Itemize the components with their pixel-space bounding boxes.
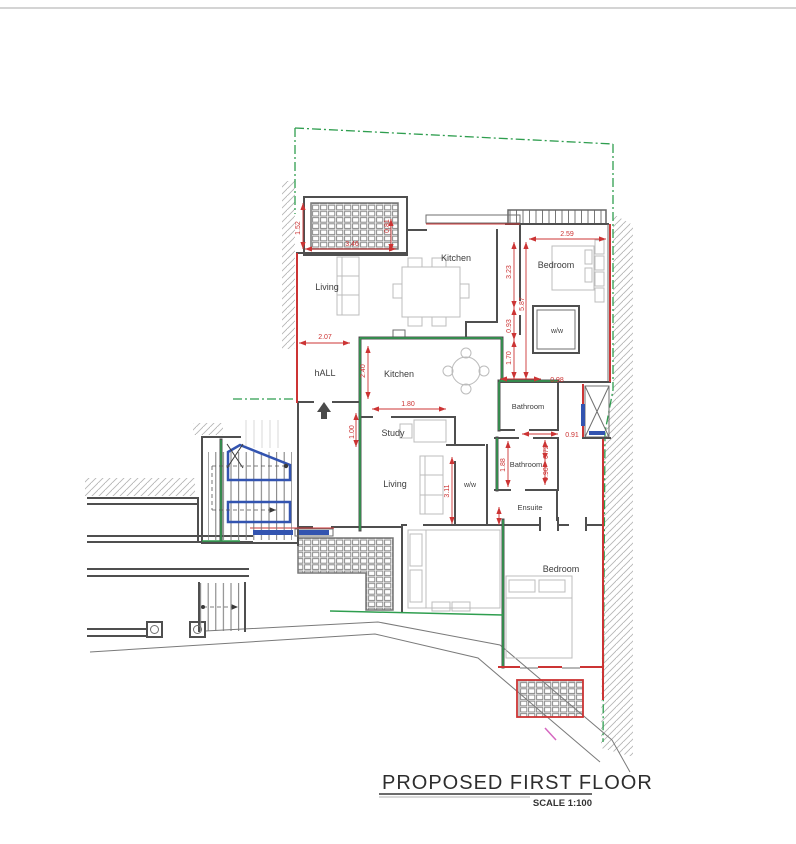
stair-window [299, 530, 329, 535]
lift-shaft [581, 386, 610, 438]
room-label-bedroom-top: Bedroom [538, 260, 575, 270]
dimension-lines [299, 203, 606, 525]
kitchen-window [426, 215, 520, 223]
sofa-living-top [337, 257, 359, 315]
room-label-study: Study [381, 428, 405, 438]
dining-table [393, 258, 469, 326]
balcony-top-right [508, 210, 606, 224]
bed-middle [408, 530, 500, 611]
terrace-bottom-middle [298, 538, 393, 610]
dim-kitchen-depth: 2.40 [360, 364, 367, 378]
drawing-scale: SCALE 1:100 [533, 798, 592, 809]
bed-bottom-right [506, 576, 572, 658]
dim-hall-width: 2.07 [318, 334, 332, 341]
dim-wall-step: 0.93 [506, 319, 513, 333]
dim-bedroom-depth: 3.23 [506, 265, 513, 279]
dim-bathroom-split-a: 0.72 [543, 445, 550, 459]
room-label-living-mid: Living [383, 479, 407, 489]
stair-window [253, 530, 293, 535]
dim-study-side: 1.00 [349, 425, 356, 439]
red-construction-lines [250, 224, 610, 717]
dim-bathroom2-depth: 1.88 [500, 458, 507, 472]
dim-terrace-height: 1.52 [295, 221, 302, 235]
floor-plan-page: 1.52 3.46 0.81 2.59 3.23 5.87 0.93 1.70 … [0, 0, 796, 844]
shaft-window [589, 431, 605, 435]
floor-plan-drawing: 1.52 3.46 0.81 2.59 3.23 5.87 0.93 1.70 … [0, 0, 796, 844]
dim-wardrobe-depth: 1.70 [506, 351, 513, 365]
drawing-title: PROPOSED FIRST FLOOR [382, 772, 653, 794]
dim-study-width: 1.80 [401, 401, 415, 408]
title-block: PROPOSED FIRST FLOOR SCALE 1:100 [379, 772, 653, 809]
dim-bedroom-width: 2.59 [560, 231, 574, 238]
room-label-kitchen-top: Kitchen [441, 253, 471, 263]
desk-study [400, 420, 446, 442]
dim-bathroom2-width: 0.91 [565, 432, 579, 439]
column [147, 622, 162, 637]
room-label-ww-top: w/w [550, 328, 564, 335]
room-label-hall: hALL [314, 368, 335, 378]
balcony-bottom-right [519, 680, 583, 717]
shaft-window [581, 404, 585, 426]
bed-top-right [552, 240, 604, 302]
dim-east-side-total: 5.87 [519, 297, 526, 311]
dim-terrace-width: 3.46 [345, 241, 359, 248]
room-label-ww-mid: w/w [463, 482, 477, 489]
dim-bathroom-split-b: 0.90 [543, 467, 550, 481]
dim-corridor-length: 3.11 [444, 484, 451, 497]
entrance-arrow [317, 402, 331, 419]
room-label-living-top: Living [315, 282, 339, 292]
room-label-bathroom-top: Bathroom [512, 402, 545, 411]
room-label-ensuite: Ensuite [517, 503, 542, 512]
dim-bathroom1-width: 0.98 [550, 377, 564, 384]
round-table-kitchen [443, 348, 489, 394]
room-label-bathroom-mid: Bathroom [510, 460, 543, 469]
dim-kitchen-front-offset: 0.81 [384, 219, 391, 233]
room-label-kitchen-mid: Kitchen [384, 369, 414, 379]
external-stair [200, 583, 245, 631]
sofa-living-mid [420, 456, 443, 514]
room-label-bedroom-bottom: Bedroom [543, 564, 580, 574]
